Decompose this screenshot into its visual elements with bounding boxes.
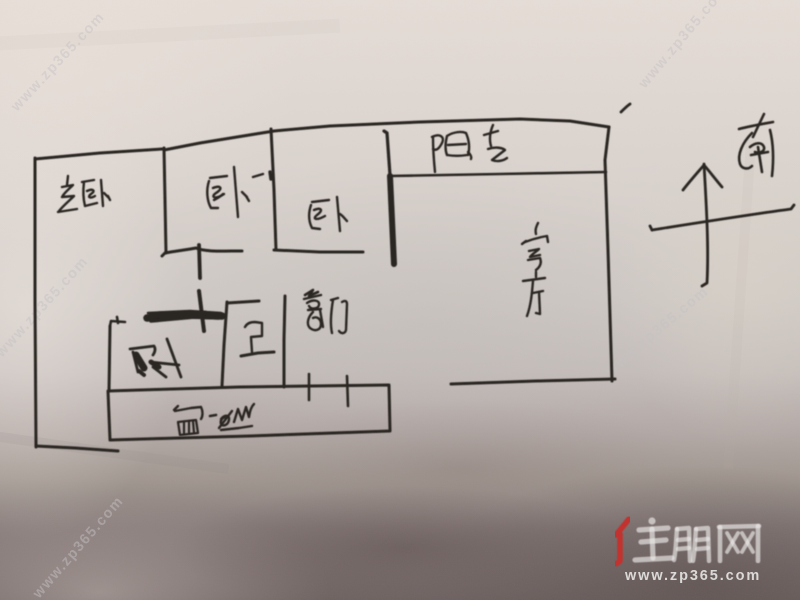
svg-text:www.zp365.com: www.zp365.com bbox=[624, 568, 761, 584]
